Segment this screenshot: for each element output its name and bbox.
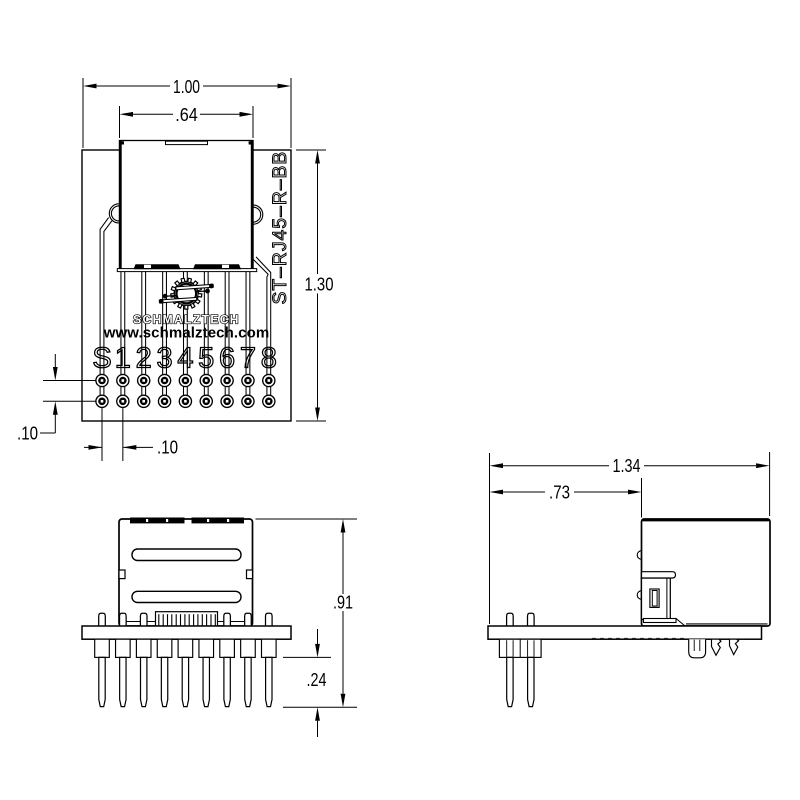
svg-text:1.00: 1.00 bbox=[173, 76, 200, 97]
svg-text:S: S bbox=[92, 343, 111, 375]
svg-text:8: 8 bbox=[261, 343, 277, 375]
svg-text:3: 3 bbox=[156, 343, 172, 375]
svg-text:www.schmalztech.com: www.schmalztech.com bbox=[103, 325, 270, 342]
svg-text:1: 1 bbox=[115, 343, 131, 375]
svg-text:.73: .73 bbox=[549, 481, 570, 502]
svg-text:2: 2 bbox=[136, 343, 152, 375]
svg-text:.10: .10 bbox=[157, 436, 178, 457]
svg-text:1.30: 1.30 bbox=[305, 273, 334, 294]
svg-text:.10: .10 bbox=[17, 423, 38, 444]
svg-text:4: 4 bbox=[177, 343, 193, 375]
svg-text:ST–RJ45–R–BB: ST–RJ45–R–BB bbox=[270, 151, 291, 305]
svg-text:.24: .24 bbox=[307, 669, 327, 690]
svg-text:1.34: 1.34 bbox=[613, 455, 641, 476]
svg-text:6: 6 bbox=[219, 343, 235, 375]
svg-text:7: 7 bbox=[240, 343, 256, 375]
svg-text:.91: .91 bbox=[333, 592, 353, 613]
svg-text:5: 5 bbox=[198, 343, 214, 375]
svg-text:.64: .64 bbox=[175, 104, 198, 125]
